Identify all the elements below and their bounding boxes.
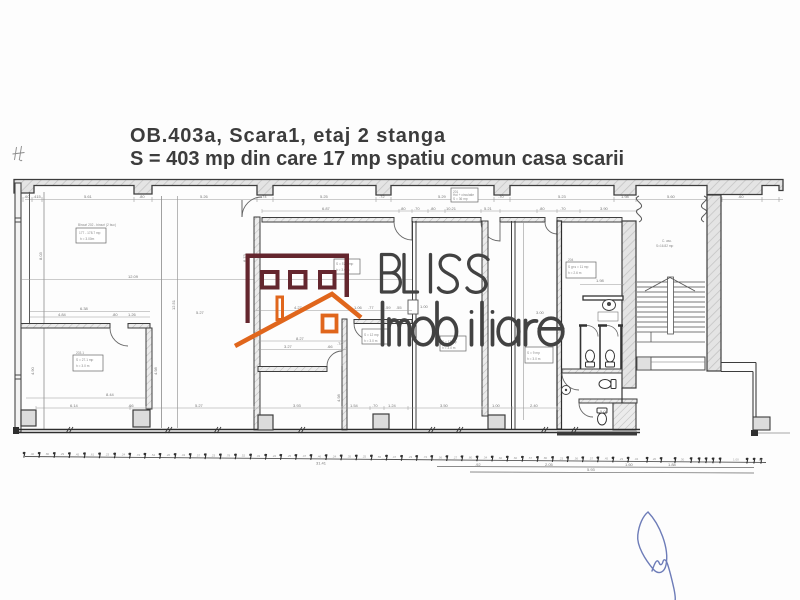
svg-text:203.1: 203.1 — [76, 351, 84, 355]
svg-text:.24: .24 — [332, 454, 337, 458]
svg-text:.57: .57 — [528, 456, 533, 460]
svg-text:.80: .80 — [400, 206, 406, 211]
svg-text:.20: .20 — [652, 457, 657, 461]
svg-text:1.00: 1.00 — [420, 304, 429, 309]
svg-text:.70: .70 — [372, 403, 378, 408]
svg-text:1.98: 1.98 — [596, 278, 605, 283]
svg-text:.40: .40 — [30, 452, 35, 456]
svg-text:h = 3.0 m: h = 3.0 m — [76, 364, 90, 368]
svg-text:.27: .27 — [453, 455, 458, 459]
svg-text:h = 3.0 m: h = 3.0 m — [527, 357, 541, 361]
svg-text:.30: .30 — [680, 457, 685, 461]
svg-text:h = 3.00m: h = 3.00m — [80, 237, 95, 241]
svg-text:.78: .78 — [226, 454, 231, 458]
svg-text:177 - 178.7 mp: 177 - 178.7 mp — [79, 231, 101, 235]
svg-text:.72: .72 — [136, 453, 141, 457]
svg-text:.22: .22 — [272, 454, 277, 458]
svg-text:S=16.82 mp: S=16.82 mp — [656, 244, 674, 248]
svg-text:5.29: 5.29 — [438, 194, 447, 199]
svg-text:.46: .46 — [317, 454, 322, 458]
svg-text:1.00: 1.00 — [492, 403, 501, 408]
svg-text:.74: .74 — [337, 341, 343, 346]
svg-text:.77: .77 — [368, 305, 374, 310]
svg-text:.70: .70 — [560, 206, 566, 211]
svg-text:.415: .415 — [33, 194, 42, 199]
svg-text:.24: .24 — [121, 453, 126, 457]
svg-text:.70: .70 — [498, 194, 504, 199]
svg-text:4.98: 4.98 — [336, 393, 341, 402]
svg-text:.25: .25 — [287, 454, 292, 458]
svg-text:.80: .80 — [430, 206, 436, 211]
svg-text:5.27: 5.27 — [195, 403, 204, 408]
svg-text:1.54: 1.54 — [350, 403, 359, 408]
svg-text:.23: .23 — [559, 456, 564, 460]
svg-text:.57: .57 — [589, 457, 594, 461]
svg-text:S = 12 mp: S = 12 mp — [364, 333, 379, 337]
svg-text:.66: .66 — [327, 344, 333, 349]
svg-text:h = 2.6 m: h = 2.6 m — [568, 271, 582, 275]
svg-text:.47: .47 — [392, 455, 397, 459]
svg-text:.80: .80 — [543, 456, 548, 460]
svg-text:1.24: 1.24 — [388, 403, 397, 408]
svg-text:.35: .35 — [347, 455, 352, 459]
svg-text:.55: .55 — [396, 305, 402, 310]
svg-text:.60: .60 — [513, 456, 518, 460]
svg-text:.56: .56 — [574, 456, 579, 460]
svg-text:1.88: 1.88 — [668, 462, 677, 467]
svg-text:204: 204 — [568, 258, 574, 262]
svg-text:.72: .72 — [379, 194, 385, 199]
svg-text:S = 27.1 mp: S = 27.1 mp — [76, 358, 94, 362]
svg-text:.29: .29 — [60, 452, 65, 456]
svg-text:S = 36 mp: S = 36 mp — [453, 197, 468, 201]
svg-text:8.03: 8.03 — [38, 251, 43, 260]
svg-text:.25: .25 — [362, 455, 367, 459]
svg-text:.66: .66 — [128, 403, 134, 408]
svg-text:.54: .54 — [151, 453, 156, 457]
svg-text:OB.403a, Scara1, etaj 2 stanga: OB.403a, Scara1, etaj 2 stanga — [130, 125, 446, 147]
svg-text:4.90: 4.90 — [30, 366, 35, 375]
svg-text:1.26: 1.26 — [128, 312, 137, 317]
svg-text:S = 9 mp: S = 9 mp — [527, 351, 540, 355]
svg-text:5.93: 5.93 — [587, 467, 596, 472]
svg-text:h = 3.0 m: h = 3.0 m — [364, 339, 378, 343]
svg-text:.57: .57 — [196, 453, 201, 457]
svg-text:10.21: 10.21 — [446, 206, 457, 211]
svg-text:5.21: 5.21 — [484, 206, 493, 211]
svg-text:3.27: 3.27 — [284, 344, 293, 349]
svg-text:4.98: 4.98 — [153, 366, 158, 375]
svg-text:.56: .56 — [438, 455, 443, 459]
svg-text:S gr.s = 11 mp: S gr.s = 11 mp — [568, 265, 589, 269]
svg-text:Birouri 202 - birouri (2 buc): Birouri 202 - birouri (2 buc) — [78, 223, 116, 227]
svg-text:5.23: 5.23 — [558, 194, 567, 199]
svg-text:.26: .26 — [166, 453, 171, 457]
svg-text:4.84: 4.84 — [58, 312, 67, 317]
svg-text:.80: .80 — [45, 452, 50, 456]
svg-text:5.26: 5.26 — [200, 194, 209, 199]
svg-text:5.60: 5.60 — [667, 194, 676, 199]
svg-text:.52: .52 — [241, 454, 246, 458]
svg-text:3.90: 3.90 — [600, 206, 609, 211]
svg-text:.55: .55 — [377, 455, 382, 459]
svg-text:.33: .33 — [256, 454, 261, 458]
svg-text:1.60: 1.60 — [625, 462, 634, 467]
svg-text:12.51: 12.51 — [171, 299, 176, 310]
svg-text:.23: .23 — [619, 457, 624, 461]
svg-text:.70: .70 — [414, 206, 420, 211]
svg-text:.59: .59 — [385, 305, 391, 310]
svg-text:.40: .40 — [758, 458, 763, 462]
svg-text:.34: .34 — [634, 457, 639, 461]
svg-text:5.61: 5.61 — [84, 194, 93, 199]
svg-text:.43: .43 — [181, 453, 186, 457]
svg-text:C. asc.: C. asc. — [662, 239, 672, 243]
svg-text:1.98: 1.98 — [621, 194, 630, 199]
svg-text:.23: .23 — [408, 455, 413, 459]
svg-text:3.50: 3.50 — [440, 403, 449, 408]
svg-text:6.14: 6.14 — [70, 403, 79, 408]
svg-text:S = 403 mp din care 17 mp spat: S = 403 mp din care 17 mp spatiu comun c… — [130, 148, 624, 170]
svg-text:.60: .60 — [738, 194, 744, 199]
svg-text:5.08: 5.08 — [600, 409, 609, 414]
svg-text:.34: .34 — [483, 456, 488, 460]
svg-text:3.00: 3.00 — [536, 310, 545, 315]
svg-text:h = 3.0 m: h = 3.0 m — [442, 346, 456, 350]
svg-text:.80: .80 — [468, 456, 473, 460]
svg-text:.23: .23 — [105, 453, 110, 457]
svg-text:2.40: 2.40 — [530, 403, 539, 408]
svg-text:.61: .61 — [90, 453, 95, 457]
svg-text:.92: .92 — [475, 462, 481, 467]
svg-text:.80: .80 — [539, 206, 545, 211]
svg-text:.60: .60 — [498, 456, 503, 460]
svg-text:.47: .47 — [302, 454, 307, 458]
svg-text:5.27: 5.27 — [196, 310, 205, 315]
svg-text:5.25: 5.25 — [320, 194, 329, 199]
svg-text:6.87: 6.87 — [322, 206, 331, 211]
svg-text:12.09: 12.09 — [128, 274, 139, 279]
svg-text:31.41: 31.41 — [316, 461, 327, 466]
svg-text:.80: .80 — [112, 312, 118, 317]
svg-text:2.05: 2.05 — [545, 462, 554, 467]
svg-text:.80: .80 — [139, 194, 145, 199]
svg-text:.72: .72 — [423, 455, 428, 459]
svg-text:1.00: 1.00 — [733, 458, 739, 462]
svg-text:6.38: 6.38 — [80, 306, 89, 311]
svg-text:.45: .45 — [75, 452, 80, 456]
svg-text:8.44: 8.44 — [106, 392, 115, 397]
svg-text:.23: .23 — [211, 454, 216, 458]
svg-text:8.27: 8.27 — [296, 336, 305, 341]
svg-text:1.06: 1.06 — [354, 305, 363, 310]
svg-text:.74: .74 — [261, 194, 267, 199]
svg-text:3.93: 3.93 — [293, 403, 302, 408]
svg-text:.45: .45 — [604, 457, 609, 461]
